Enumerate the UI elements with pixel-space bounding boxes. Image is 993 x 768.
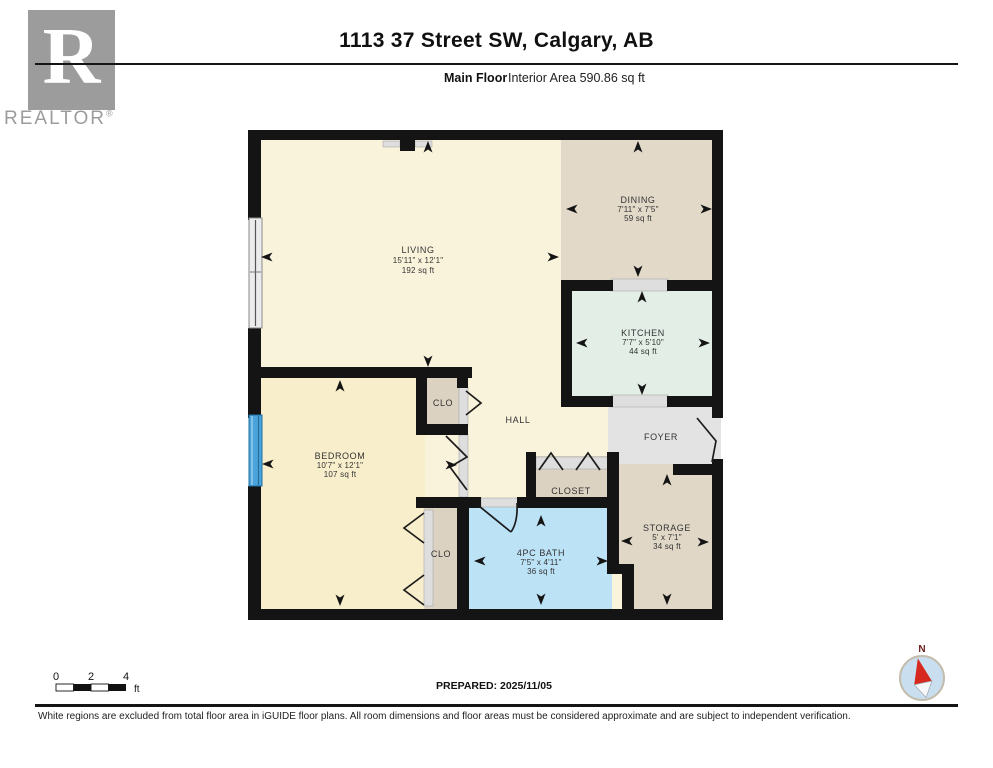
compass-icon: N <box>900 644 944 700</box>
footer-disclaimer: White regions are excluded from total fl… <box>38 711 851 722</box>
bath-area: 36 sq ft <box>527 567 555 576</box>
floor-plan-page: R REALTOR® 1113 37 Street SW, Calgary, A… <box>0 0 993 768</box>
scale-tick-4: 4 <box>123 671 129 683</box>
realtor-logo: R <box>28 10 115 110</box>
kitchen-dims: 7'7" x 5'10" <box>622 338 664 347</box>
realtor-logo-letter: R <box>43 17 101 97</box>
bedroom-area: 107 sq ft <box>324 470 357 479</box>
floor-plan-canvas: LIVING 15'11" x 12'1" 192 sq ft DINING 7… <box>0 0 993 768</box>
scale-unit-label: ft <box>134 684 140 695</box>
storage-label: STORAGE <box>643 523 691 533</box>
kitchen-area: 44 sq ft <box>629 347 657 356</box>
kitchen-label: KITCHEN <box>621 328 665 338</box>
dining-label: DINING <box>620 195 655 205</box>
dining-area: 59 sq ft <box>624 214 652 223</box>
header-divider <box>35 63 958 65</box>
living-label: LIVING <box>401 245 434 255</box>
floor-bedroom <box>250 370 425 614</box>
prepared-date-label: PREPARED: 2025/11/05 <box>436 680 552 692</box>
scale-segment <box>109 684 127 691</box>
bedroom-dims: 10'7" x 12'1" <box>317 461 363 470</box>
realtor-logo-brand: REALTOR <box>4 108 106 129</box>
bath-label: 4PC BATH <box>517 548 565 558</box>
realtor-logo-wordmark: REALTOR® <box>4 108 113 130</box>
living-area: 192 sq ft <box>402 266 435 275</box>
scale-tick-0: 0 <box>53 671 59 683</box>
dining-dims: 7'11" x 7'5" <box>617 205 658 214</box>
scale-segment <box>91 684 109 691</box>
storage-dims: 5' x 7'1" <box>652 533 682 542</box>
living-window <box>249 218 262 328</box>
hall-label: HALL <box>506 415 531 425</box>
closet-label: CLOSET <box>551 486 591 496</box>
living-dims: 15'11" x 12'1" <box>393 256 444 265</box>
scale-segment <box>56 684 74 691</box>
clo-bottom-label: CLO <box>431 549 451 559</box>
scale-bar: 0 2 4 ft <box>53 671 140 695</box>
footer-divider <box>35 704 958 707</box>
bedroom-window <box>249 415 262 486</box>
clo-top-label: CLO <box>433 398 453 408</box>
scale-tick-2: 2 <box>88 671 94 683</box>
scale-segment <box>74 684 92 691</box>
registered-mark: ® <box>106 109 113 119</box>
bedroom-label: BEDROOM <box>315 451 366 461</box>
compass-north-label: N <box>918 644 925 655</box>
storage-area: 34 sq ft <box>653 542 681 551</box>
bath-dims: 7'5" x 4'11" <box>520 558 561 567</box>
foyer-label: FOYER <box>644 432 678 442</box>
